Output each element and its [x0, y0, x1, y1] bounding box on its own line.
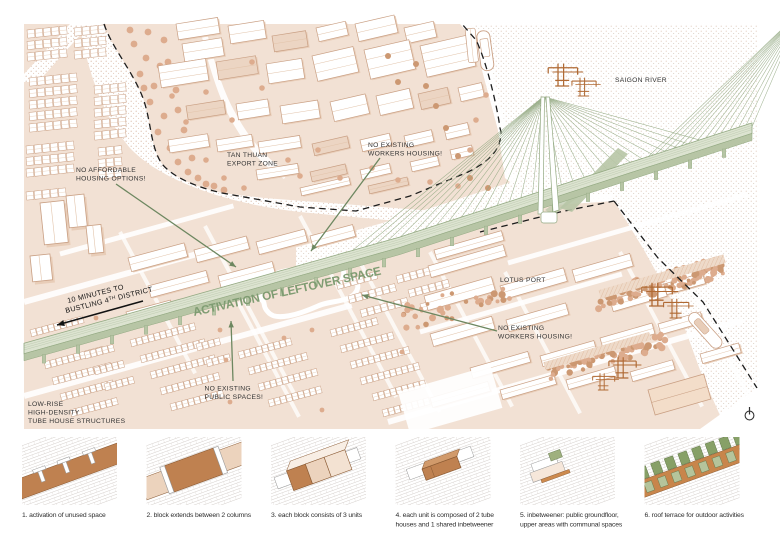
- svg-text:1. activation of unused space: 1. activation of unused space: [22, 512, 106, 519]
- svg-text:NO AFFORDABLEHOUSING OPTIONS!: NO AFFORDABLEHOUSING OPTIONS!: [76, 167, 146, 183]
- svg-text:6. roof terrace for outdoor ac: 6. roof terrace for outdoor activities: [645, 512, 745, 519]
- svg-text:2. block extends between 2 col: 2. block extends between 2 columns: [147, 512, 252, 519]
- svg-text:3. each block consists of 3 un: 3. each block consists of 3 units: [271, 512, 363, 519]
- svg-text:LOTUS PORT: LOTUS PORT: [500, 277, 546, 284]
- svg-text:SAIGON RIVER: SAIGON RIVER: [615, 77, 667, 84]
